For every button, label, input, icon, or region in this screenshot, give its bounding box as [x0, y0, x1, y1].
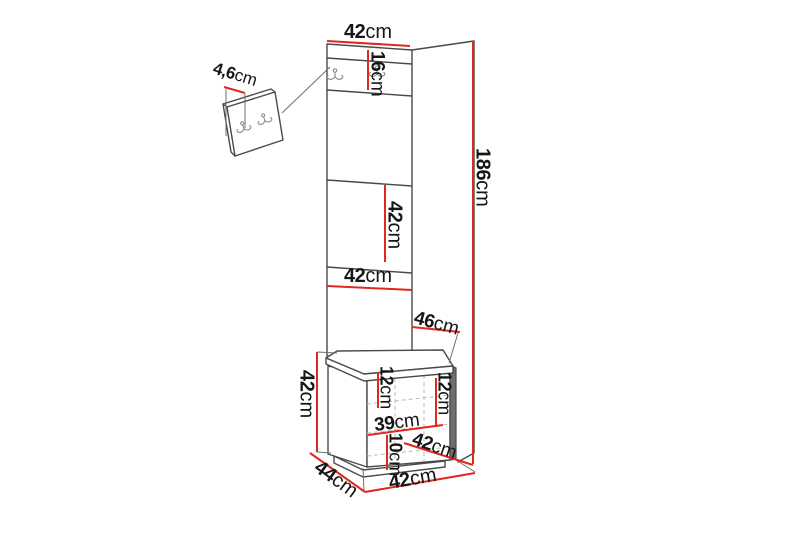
diagram-canvas: 42cm 16cm 4,6cm 42cm 42cm 46cm 186cm 42c… [0, 0, 800, 533]
dim-top-depth-label: 46cm [412, 308, 462, 340]
dim-total-height-label: 186cm [472, 148, 494, 207]
dim-panel-top-width-label: 42cm [344, 21, 392, 43]
dim-bench-height-label: 42cm [296, 370, 318, 418]
dim-hook-section-height-label: 16cm [367, 51, 388, 97]
detail-pointer-line [282, 67, 330, 113]
bench-side-face [328, 366, 367, 467]
wall-panel-face [227, 92, 283, 156]
dim-cushion-left-label: 12cm [377, 366, 397, 409]
dim-cushion-right-label: 12cm [435, 372, 455, 415]
dim-wall-hook-width-label: 4,6cm [211, 59, 260, 90]
furniture-dimension-diagram: 42cm 16cm 4,6cm 42cm 42cm 46cm 186cm 42c… [0, 0, 800, 533]
dim-panel-segment-height-label: 42cm [384, 201, 406, 249]
dim-wall-hook-width-line [224, 87, 245, 93]
dim-panel-lower-width-label: 42cm [344, 265, 392, 287]
